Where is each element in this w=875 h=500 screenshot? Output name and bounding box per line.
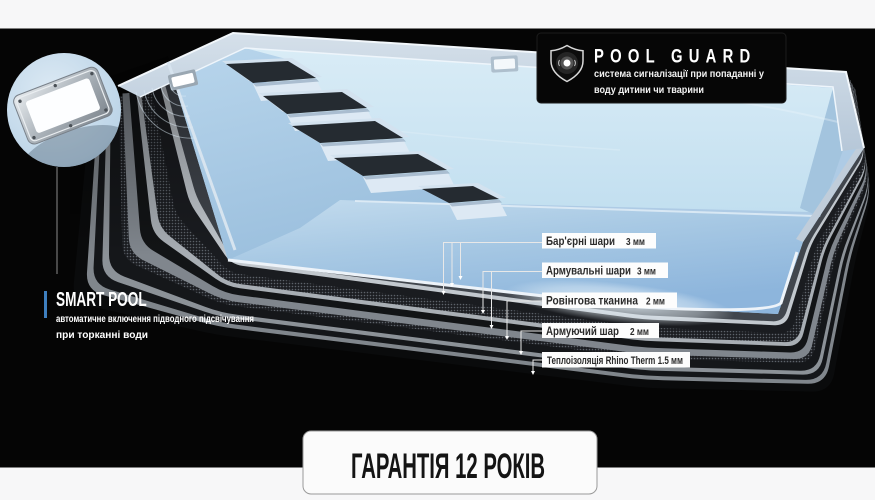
svg-text:Армуючий шар: Армуючий шар — [546, 326, 619, 338]
svg-text:SMART POOL: SMART POOL — [56, 288, 147, 310]
svg-text:3 мм: 3 мм — [637, 266, 656, 278]
svg-text:POOL GUARD: POOL GUARD — [594, 46, 756, 67]
svg-text:Ровінгова тканина: Ровінгова тканина — [546, 296, 639, 308]
svg-text:2 мм: 2 мм — [630, 326, 649, 338]
svg-text:ГАРАНТІЯ 12 РОКІВ: ГАРАНТІЯ 12 РОКІВ — [351, 447, 545, 486]
svg-text:2 мм: 2 мм — [646, 296, 665, 308]
svg-text:при торканні води: при торканні води — [56, 329, 148, 341]
svg-text:система сигналізації при попад: система сигналізації при попаданні у — [594, 68, 764, 80]
svg-text:воду дитини чи тварини: воду дитини чи тварини — [594, 84, 704, 96]
svg-text:Теплоізоляція Rhino Therm 1.5: Теплоізоляція Rhino Therm 1.5 мм — [547, 355, 683, 367]
svg-text:Бар'єрні шари: Бар'єрні шари — [546, 236, 615, 248]
svg-text:автоматичне включення підводно: автоматичне включення підводного підсвіч… — [56, 313, 254, 325]
svg-text:Армувальні шари: Армувальні шари — [546, 266, 631, 278]
svg-text:3 мм: 3 мм — [626, 236, 645, 248]
